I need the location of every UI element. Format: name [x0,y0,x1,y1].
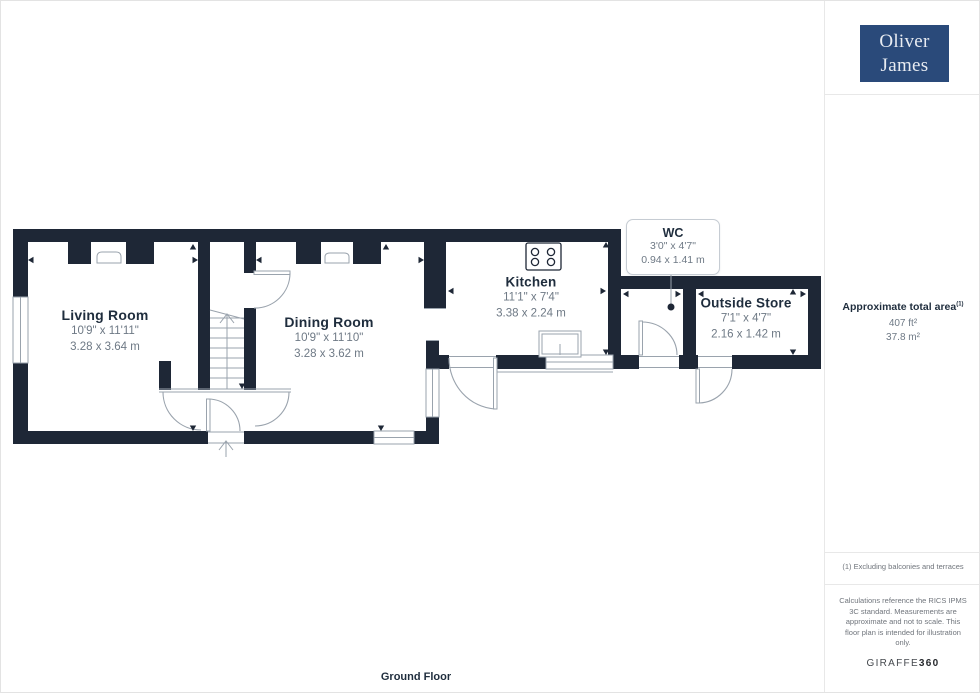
hob-icon [526,243,561,270]
room-dims-metric: 3.28 x 3.64 m [62,339,149,355]
floorplan-canvas: Living Room 10'9" x 11'11" 3.28 x 3.64 m… [0,0,980,693]
total-area-title-text: Approximate total area [842,301,956,313]
room-name: Outside Store [700,295,791,310]
room-label-dining-room: Dining Room 10'9" x 11'10" 3.28 x 3.62 m [284,314,373,362]
wc-callout: WC 3'0" x 4'7" 0.94 x 1.41 m [626,219,720,275]
giraffe360-logo: GIRAFFE360 [825,658,980,669]
logo-text-line1: Oliver [879,30,929,54]
agency-logo: Oliver James [860,25,949,82]
giraffe360-name: GIRAFFE [866,658,918,669]
sidebar-divider [825,584,980,585]
sink-icon [539,331,581,357]
staircase [210,310,244,389]
room-label-outside-store: Outside Store 7'1" x 4'7" 2.16 x 1.42 m [700,295,791,342]
room-dims-imperial: 3'0" x 4'7" [650,240,696,254]
floor-name-label: Ground Floor [381,671,451,683]
logo-text-line2: James [881,54,929,78]
room-dims-metric: 3.38 x 2.24 m [496,306,566,322]
total-area-metric: 37.8 m² [825,332,980,343]
room-label-living-room: Living Room 10'9" x 11'11" 3.28 x 3.64 m [62,307,149,355]
room-dims-metric: 2.16 x 1.42 m [700,327,791,343]
room-name: Kitchen [496,274,566,289]
room-name: Living Room [62,307,149,323]
sidebar-divider [825,552,980,553]
info-sidebar: Oliver James Approximate total area(1) 4… [824,1,980,693]
room-name: WC [663,226,684,240]
total-area-footnote-ref: (1) [956,302,963,308]
sidebar-divider [825,94,980,95]
disclaimer-text: Calculations reference the RICS IPMS 3C … [839,596,967,649]
room-dims-imperial: 10'9" x 11'10" [284,330,373,346]
room-dims-imperial: 7'1" x 4'7" [700,310,791,326]
giraffe360-number: 360 [919,658,940,669]
room-dims-imperial: 10'9" x 11'11" [62,323,149,339]
fireplace-living [91,242,126,264]
area-footnote: (1) Excluding balconies and terraces [831,562,975,571]
room-name: Dining Room [284,314,373,330]
room-label-kitchen: Kitchen 11'1" x 7'4" 3.38 x 2.24 m [496,274,566,321]
room-dims-metric: 3.28 x 3.62 m [284,346,373,362]
room-dims-metric: 0.94 x 1.41 m [641,254,705,268]
room-dims-imperial: 11'1" x 7'4" [496,289,566,305]
total-area-imperial: 407 ft² [825,318,980,329]
fireplace-dining [321,242,353,264]
total-area-title: Approximate total area(1) [825,301,980,313]
